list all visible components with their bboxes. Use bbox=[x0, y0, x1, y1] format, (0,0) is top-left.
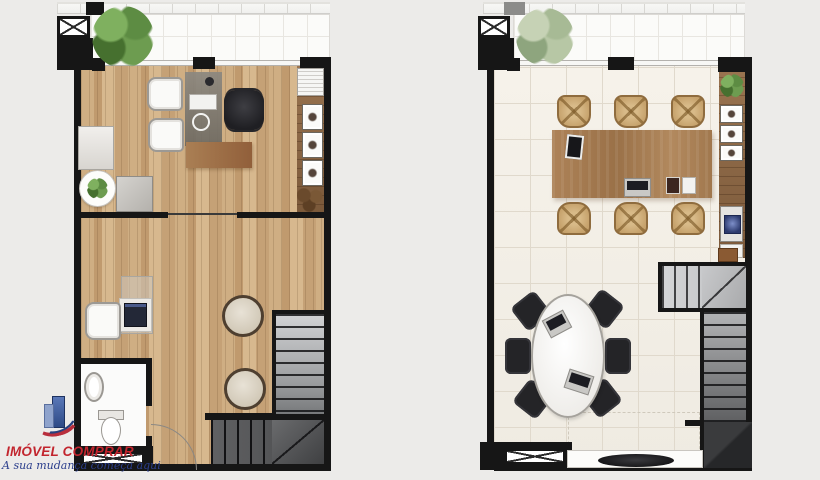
office-chair bbox=[224, 90, 264, 130]
stair-railing bbox=[205, 413, 327, 420]
wood-side-table bbox=[186, 142, 252, 168]
paper-icon bbox=[682, 177, 696, 194]
window-sill bbox=[634, 60, 718, 66]
decor-frame bbox=[720, 125, 743, 143]
round-stool bbox=[222, 295, 264, 337]
staircase-winder bbox=[272, 420, 324, 464]
ac-vent bbox=[297, 68, 324, 96]
plant-icon bbox=[516, 8, 574, 66]
computer-icon bbox=[124, 303, 147, 327]
window-sill bbox=[215, 60, 302, 66]
decor-frame bbox=[302, 104, 323, 130]
laptop-screen bbox=[569, 372, 591, 388]
brand-logo-icon bbox=[34, 394, 82, 436]
duct-shaft-icon bbox=[504, 448, 566, 465]
brand-logo: IMÓVEL COMPRAR A sua mudança começa aqui bbox=[0, 388, 170, 480]
wall-right bbox=[745, 57, 752, 470]
cabinet bbox=[78, 126, 114, 170]
furniture-outline bbox=[568, 412, 700, 454]
storage-box bbox=[116, 176, 153, 212]
lounge-chair bbox=[605, 338, 631, 374]
guest-chair bbox=[148, 118, 184, 152]
meeting-chair bbox=[557, 202, 591, 235]
duct-shaft-icon bbox=[57, 16, 90, 38]
wall-right bbox=[324, 57, 331, 470]
meeting-chair bbox=[614, 95, 648, 128]
staircase-down-flight bbox=[700, 312, 746, 422]
meeting-chair bbox=[614, 202, 648, 235]
meeting-chair bbox=[557, 95, 591, 128]
staircase-winder bbox=[702, 266, 746, 308]
wall-left bbox=[487, 57, 494, 470]
staircase-landing bbox=[700, 422, 752, 468]
tablet-icon bbox=[565, 134, 584, 160]
entrance-door-block bbox=[608, 57, 634, 70]
laptop-icon bbox=[624, 178, 651, 197]
decor-frame bbox=[302, 132, 323, 158]
round-stool bbox=[224, 368, 266, 410]
guest-chair bbox=[147, 77, 183, 111]
staircase-upper-flight bbox=[272, 310, 324, 414]
interior-wall bbox=[74, 212, 168, 218]
desk-sculpture bbox=[192, 113, 210, 131]
printer-icon bbox=[720, 206, 743, 242]
decor-frame bbox=[720, 105, 743, 123]
wall-column bbox=[504, 2, 525, 15]
entrance-door-block bbox=[193, 57, 215, 69]
decor-frame bbox=[720, 145, 743, 161]
decor-platter bbox=[598, 454, 674, 467]
decor-bowls bbox=[297, 188, 324, 212]
plant-icon bbox=[92, 6, 154, 68]
laptop-screen bbox=[627, 181, 648, 190]
lounge-chair bbox=[505, 338, 531, 374]
decor-frame bbox=[302, 160, 323, 186]
printer-screen bbox=[724, 215, 741, 234]
potted-plant-icon bbox=[720, 74, 744, 98]
brand-title: IMÓVEL COMPRAR bbox=[6, 444, 134, 459]
floorplan-canvas: IMÓVEL COMPRAR A sua mudança começa aqui bbox=[0, 0, 820, 480]
meeting-chair bbox=[671, 95, 705, 128]
potted-plant-icon bbox=[87, 178, 108, 199]
bathroom-wall bbox=[74, 358, 152, 364]
desk-accessory bbox=[205, 77, 214, 86]
wall-column bbox=[507, 58, 520, 71]
oval-table bbox=[531, 294, 605, 418]
laptop-screen bbox=[546, 314, 567, 331]
notebook-icon bbox=[666, 177, 680, 194]
duct-shaft-icon bbox=[478, 16, 510, 38]
brand-tagline: A sua mudança começa aqui bbox=[2, 459, 161, 472]
laptop-icon bbox=[189, 94, 217, 110]
meeting-chair bbox=[671, 202, 705, 235]
stair-door bbox=[718, 248, 738, 262]
desk-chair bbox=[85, 302, 121, 340]
interior-wall bbox=[237, 212, 331, 218]
door-leaf-line bbox=[168, 213, 237, 215]
